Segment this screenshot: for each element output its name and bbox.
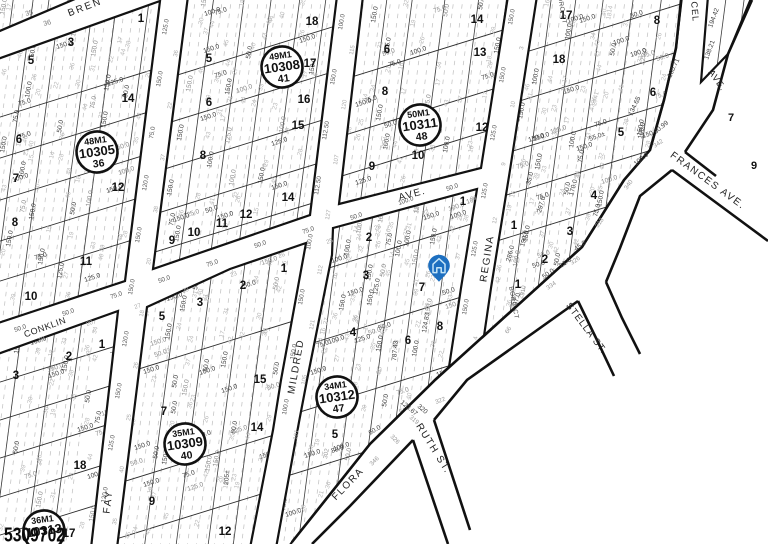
svg-text:16: 16 bbox=[298, 94, 311, 106]
svg-text:205±: 205± bbox=[223, 470, 231, 486]
svg-text:1: 1 bbox=[460, 196, 467, 208]
svg-text:5: 5 bbox=[332, 429, 339, 441]
svg-text:9: 9 bbox=[369, 161, 375, 173]
svg-text:14: 14 bbox=[251, 422, 264, 434]
svg-text:8: 8 bbox=[654, 15, 661, 27]
svg-text:3: 3 bbox=[363, 270, 369, 282]
svg-text:9: 9 bbox=[149, 496, 155, 508]
svg-text:8: 8 bbox=[12, 217, 19, 229]
svg-text:9: 9 bbox=[751, 160, 757, 172]
svg-text:14: 14 bbox=[282, 192, 295, 204]
svg-text:7: 7 bbox=[161, 406, 167, 418]
svg-text:18: 18 bbox=[306, 16, 319, 28]
svg-text:5309702: 5309702 bbox=[4, 525, 65, 544]
svg-text:11: 11 bbox=[80, 256, 93, 268]
svg-text:6: 6 bbox=[16, 134, 22, 146]
svg-text:12: 12 bbox=[476, 122, 489, 134]
svg-text:12: 12 bbox=[240, 209, 253, 221]
svg-text:9: 9 bbox=[169, 235, 175, 247]
svg-text:5: 5 bbox=[618, 127, 625, 139]
svg-text:2: 2 bbox=[66, 351, 72, 363]
svg-text:2: 2 bbox=[542, 254, 548, 266]
svg-text:6: 6 bbox=[650, 87, 656, 99]
svg-text:8: 8 bbox=[437, 321, 444, 333]
svg-text:10: 10 bbox=[412, 150, 425, 162]
svg-text:2: 2 bbox=[366, 232, 372, 244]
svg-text:10: 10 bbox=[25, 291, 38, 303]
svg-text:1: 1 bbox=[511, 220, 518, 232]
svg-text:13: 13 bbox=[474, 47, 487, 59]
svg-text:11: 11 bbox=[216, 218, 229, 230]
svg-text:14: 14 bbox=[471, 14, 484, 26]
svg-text:15: 15 bbox=[292, 120, 305, 132]
svg-text:5: 5 bbox=[159, 311, 166, 323]
svg-text:3: 3 bbox=[13, 370, 19, 382]
svg-text:12: 12 bbox=[112, 182, 125, 194]
svg-text:40: 40 bbox=[180, 449, 193, 463]
svg-text:18: 18 bbox=[553, 54, 566, 66]
svg-text:CEL: CEL bbox=[689, 1, 701, 22]
svg-text:1: 1 bbox=[138, 13, 145, 25]
svg-text:14: 14 bbox=[122, 93, 135, 105]
svg-text:2: 2 bbox=[240, 280, 246, 292]
svg-text:12: 12 bbox=[219, 526, 232, 538]
svg-text:1: 1 bbox=[281, 263, 288, 275]
svg-text:6: 6 bbox=[384, 44, 390, 56]
svg-text:6: 6 bbox=[405, 335, 411, 347]
svg-text:10: 10 bbox=[188, 227, 201, 239]
svg-text:4: 4 bbox=[591, 190, 598, 202]
svg-text:6: 6 bbox=[206, 97, 212, 109]
svg-text:41: 41 bbox=[277, 72, 290, 86]
svg-text:7: 7 bbox=[419, 282, 425, 294]
svg-text:3: 3 bbox=[68, 37, 74, 49]
svg-text:8: 8 bbox=[200, 150, 207, 162]
svg-text:8: 8 bbox=[382, 86, 389, 98]
svg-text:7: 7 bbox=[13, 173, 19, 185]
svg-text:18: 18 bbox=[74, 460, 87, 472]
svg-text:5: 5 bbox=[206, 53, 213, 65]
svg-text:36: 36 bbox=[92, 157, 105, 171]
svg-text:3: 3 bbox=[567, 226, 573, 238]
svg-text:1: 1 bbox=[99, 339, 106, 351]
svg-text:48: 48 bbox=[415, 130, 428, 144]
svg-text:15: 15 bbox=[254, 374, 267, 386]
svg-text:4: 4 bbox=[350, 327, 357, 339]
svg-text:5: 5 bbox=[28, 55, 35, 67]
svg-text:17: 17 bbox=[304, 58, 317, 70]
svg-text:7: 7 bbox=[728, 112, 734, 124]
svg-text:3: 3 bbox=[197, 297, 203, 309]
svg-text:47: 47 bbox=[332, 402, 345, 416]
